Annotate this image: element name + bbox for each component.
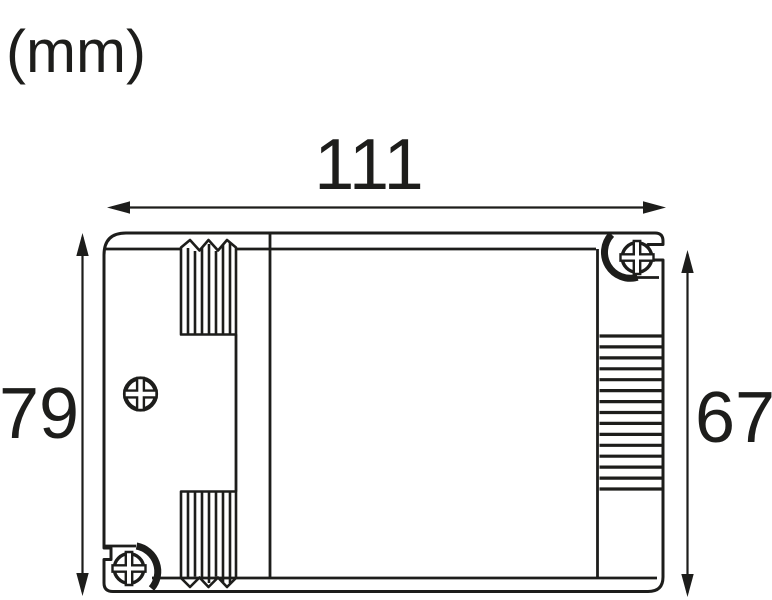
bottom-vent-fins — [181, 492, 236, 588]
technical-drawing-page: (mm) — [0, 0, 772, 600]
mounting-tab-top-right — [604, 235, 653, 279]
height-left-arrowhead-top-icon — [76, 233, 88, 256]
dimension-height-left-value: 79 — [0, 374, 79, 454]
bottom-vent-ribs — [188, 492, 230, 583]
dimension-width: 111 — [107, 125, 666, 214]
height-right-arrowhead-top-icon — [681, 250, 693, 273]
screw-center-left — [125, 378, 157, 410]
top-vent-ribs — [188, 243, 230, 335]
dimension-width-value: 111 — [314, 125, 423, 205]
height-right-arrowhead-bottom-icon — [681, 574, 693, 597]
unit-label: (mm) — [6, 18, 146, 85]
dimension-drawing: (mm) — [0, 0, 772, 600]
device-housing — [104, 233, 663, 592]
dimension-height-right: 67 — [681, 250, 772, 597]
height-left-arrowhead-bottom-icon — [76, 573, 88, 596]
width-arrowhead-left-icon — [107, 201, 130, 213]
side-vent-fins — [600, 336, 662, 489]
top-vent-fins — [181, 240, 236, 335]
width-arrowhead-right-icon — [643, 201, 666, 213]
mounting-tab-bottom-left — [113, 546, 158, 589]
dimension-height-right-value: 67 — [695, 378, 772, 458]
dimension-height-left: 79 — [0, 233, 89, 596]
